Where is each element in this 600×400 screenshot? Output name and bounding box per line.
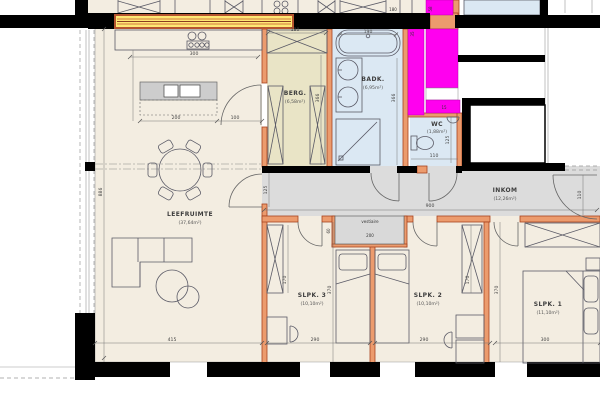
dim-island: 200 [172, 115, 181, 121]
room-area-inkom: (12,26m²) [493, 196, 516, 202]
room-label-slpk1: SLPK. 1 [534, 301, 563, 308]
room-area-slpk3: (10,10m²) [300, 301, 323, 307]
dim-island-gap: 100 [231, 115, 240, 121]
room-area-berg: (6,58m²) [285, 99, 305, 105]
room-label-slpk2: SLPK. 2 [414, 292, 443, 299]
room-area-slpk1: (11,10m²) [536, 310, 559, 316]
dim-wardrobe3: 170 [282, 276, 288, 285]
dim-hall-length: 900 [426, 203, 435, 209]
room-label-slpk3: SLPK. 3 [298, 292, 327, 299]
label-vestiaire: vestiaire [361, 219, 379, 224]
dim-vestiaire-depth: 60 [326, 228, 331, 234]
room-label-leefruimte: LEEFRUIMTE [167, 211, 213, 218]
dim-kitchen-counter: 300 [190, 51, 199, 57]
dim-wc-width: 110 [430, 153, 439, 159]
dim-tub: 190 [364, 29, 373, 35]
room-label-wc: WC [431, 121, 443, 128]
room-area-badk: (6,95m²) [363, 85, 383, 91]
dim-slpk1-depth: 370 [494, 286, 500, 295]
room-area-wc: (1,88m²) [427, 129, 447, 135]
room-label-inkom: INKOM [493, 187, 518, 194]
dim-badk-depth: 366 [391, 94, 397, 103]
dim-berg-width: 180 [291, 27, 300, 33]
dim-living-depth: 886 [98, 188, 104, 197]
dim-wardrobe2: 170 [465, 276, 471, 285]
dim-wc-depth: 125 [445, 136, 451, 145]
beam [115, 15, 293, 28]
dim-slpk3-depth: 370 [327, 286, 333, 295]
dim-slpk2-width: 290 [420, 337, 429, 343]
dim-living-width: 415 [168, 337, 177, 343]
dim-berg-depth: 366 [315, 94, 321, 103]
floor-plan: LEEFRUIMTE (37,64m²) BERG. (6,58m²) BADK… [0, 0, 600, 400]
section-marker [85, 162, 95, 171]
room-label-berg: BERG. [284, 90, 307, 97]
room-area-slpk2: (10,10m²) [416, 301, 439, 307]
dim-slpk1-width: 300 [541, 337, 550, 343]
dim-wall-35: 35 [410, 31, 415, 37]
dim-vestiaire-width: 200 [366, 233, 374, 238]
dim-hall-door: 125 [263, 186, 269, 195]
floor-living [95, 29, 262, 362]
floor-plan-drawing: LEEFRUIMTE (37,64m²) BERG. (6,58m²) BADK… [0, 0, 600, 400]
elevator-shaft [470, 105, 545, 163]
dim-wall-15: 15 [441, 105, 447, 110]
floor-shower-top [464, 0, 540, 15]
dim-top-180: 180 [389, 7, 397, 12]
dim-slpk3-width: 290 [311, 337, 320, 343]
dim-wall-58: 58 [428, 6, 433, 12]
dim-entrance: 110 [577, 191, 583, 200]
room-label-badk: BADK. [361, 76, 384, 83]
room-area-leefruimte: (37,64m²) [178, 220, 201, 226]
